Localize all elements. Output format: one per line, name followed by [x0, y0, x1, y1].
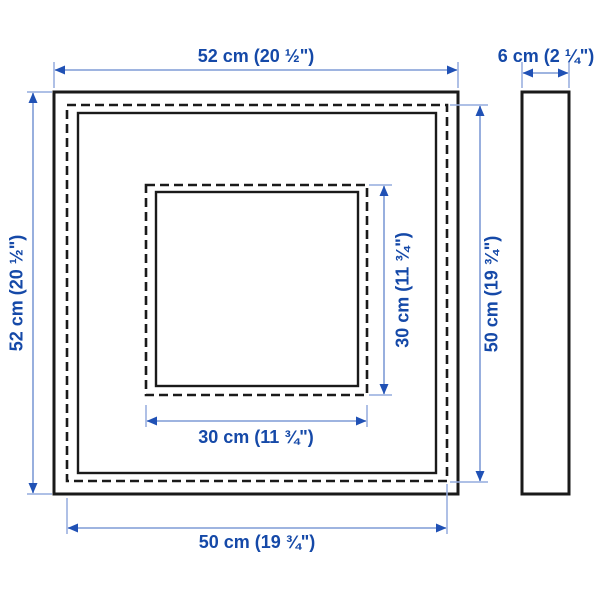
opening-width-label: 30 cm (11 ¾"): [198, 427, 314, 448]
depth-label: 6 cm (2 ¼"): [498, 46, 595, 67]
outer-height-label: 52 cm (20 ½"): [7, 235, 28, 352]
diagram-canvas: [0, 0, 600, 600]
outer-width-label: 52 cm (20 ½"): [198, 46, 315, 67]
opening-height-label: 30 cm (11 ¾"): [393, 232, 414, 348]
inner-width-label: 50 cm (19 ¾"): [199, 532, 316, 553]
inner-height-label: 50 cm (19 ¾"): [482, 236, 503, 353]
frame-side-view: [522, 92, 569, 494]
frame-dimension-diagram: 52 cm (20 ½") 6 cm (2 ¼") 52 cm (20 ½") …: [0, 0, 600, 600]
